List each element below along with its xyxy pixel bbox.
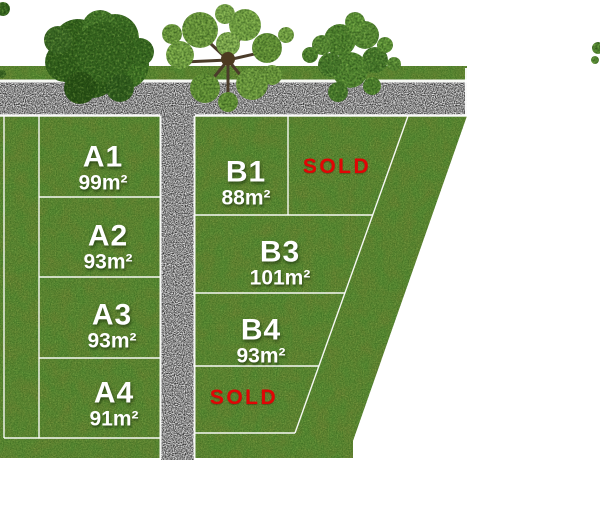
lot-area-b3: 101m²: [250, 267, 311, 290]
lot-area-b4: 93m²: [236, 345, 285, 368]
lot-area-b1: 88m²: [221, 187, 270, 210]
lot-label-b1: B1 88m²: [221, 159, 270, 210]
lot-label-a4: A4 91m²: [89, 380, 138, 431]
lot-id-b4: B4: [236, 317, 285, 345]
lot-id-b1: B1: [221, 159, 270, 187]
lot-area-a2: 93m²: [83, 251, 132, 274]
lot-id-b3: B3: [250, 239, 311, 267]
site-plan: A1 99m² A2 93m² A3 93m² A4 91m² B1 88m² …: [0, 0, 600, 524]
lot-label-a2: A2 93m²: [83, 223, 132, 274]
sold-label-top: SOLD: [303, 155, 371, 179]
lot-id-a1: A1: [78, 144, 127, 172]
lot-id-a3: A3: [87, 302, 136, 330]
lot-area-a4: 91m²: [89, 408, 138, 431]
sold-label-bottom: SOLD: [210, 386, 278, 410]
lot-area-a3: 93m²: [87, 330, 136, 353]
lot-id-a4: A4: [89, 380, 138, 408]
lot-area-a1: 99m²: [78, 172, 127, 195]
lot-label-a1: A1 99m²: [78, 144, 127, 195]
lot-label-b3: B3 101m²: [250, 239, 311, 290]
lot-id-a2: A2: [83, 223, 132, 251]
lot-label-b4: B4 93m²: [236, 317, 285, 368]
lot-labels-layer: A1 99m² A2 93m² A3 93m² A4 91m² B1 88m² …: [0, 0, 600, 524]
lot-label-a3: A3 93m²: [87, 302, 136, 353]
